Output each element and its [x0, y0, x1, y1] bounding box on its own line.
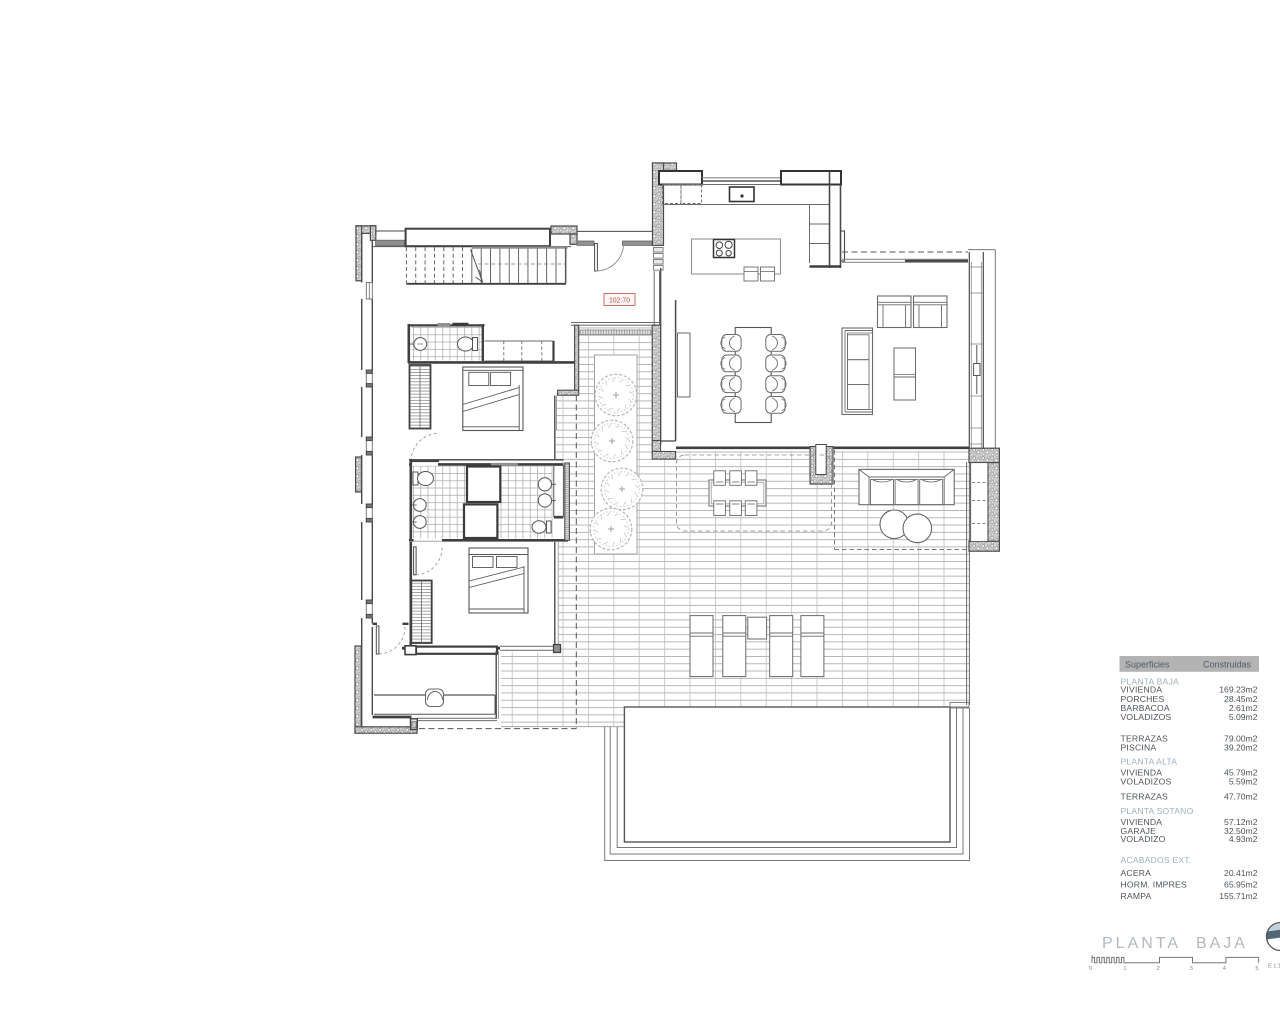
svg-text:155.71m2: 155.71m2 — [1219, 891, 1257, 901]
svg-text:Superficies: Superficies — [1125, 660, 1170, 670]
svg-text:VOLADIZOS: VOLADIZOS — [1121, 712, 1172, 722]
svg-text:0: 0 — [1089, 966, 1092, 972]
svg-text:ACABADOS EXT.: ACABADOS EXT. — [1121, 855, 1192, 865]
svg-text:PLANTA BAJA: PLANTA BAJA — [1102, 935, 1248, 952]
svg-text:169.23m2: 169.23m2 — [1219, 685, 1257, 695]
svg-text:39.20m2: 39.20m2 — [1224, 743, 1258, 753]
svg-text:VOLADIZOS: VOLADIZOS — [1121, 777, 1172, 787]
svg-text:PLANTA ALTA: PLANTA ALTA — [1121, 757, 1178, 767]
svg-text:PISCINA: PISCINA — [1121, 743, 1157, 753]
svg-text:VOLADIZO: VOLADIZO — [1121, 834, 1166, 844]
svg-text:ACERA: ACERA — [1121, 868, 1152, 878]
svg-text:5: 5 — [1255, 966, 1258, 972]
svg-text:4.93m2: 4.93m2 — [1229, 834, 1258, 844]
svg-text:1: 1 — [1123, 966, 1126, 972]
svg-text:PLANTA SOTANO: PLANTA SOTANO — [1121, 806, 1194, 816]
svg-text:Construidas: Construidas — [1203, 660, 1252, 670]
svg-text:3: 3 — [1190, 966, 1193, 972]
svg-text:2: 2 — [1157, 966, 1160, 972]
svg-text:65.95m2: 65.95m2 — [1224, 880, 1258, 890]
svg-text:5.59m2: 5.59m2 — [1229, 777, 1258, 787]
svg-text:20.41m2: 20.41m2 — [1224, 868, 1258, 878]
svg-text:E 1:100: E 1:100 — [1268, 964, 1280, 970]
svg-text:HORM. IMPRES: HORM. IMPRES — [1121, 880, 1187, 890]
svg-text:5.09m2: 5.09m2 — [1229, 712, 1258, 722]
svg-text:102.70: 102.70 — [609, 297, 630, 304]
svg-text:47.70m2: 47.70m2 — [1224, 792, 1258, 802]
svg-text:VIVIENDA: VIVIENDA — [1121, 685, 1163, 695]
svg-text:TERRAZAS: TERRAZAS — [1121, 792, 1169, 802]
svg-text:RAMPA: RAMPA — [1121, 891, 1152, 901]
